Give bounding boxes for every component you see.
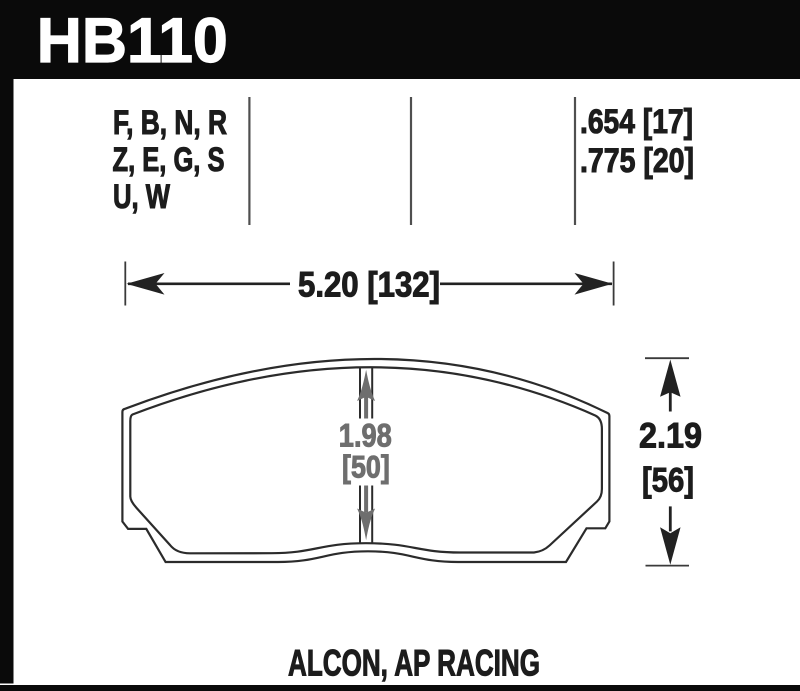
svg-text:[50]: [50] (342, 449, 390, 485)
svg-text:2.19: 2.19 (639, 417, 702, 456)
svg-text:Z, E, G, S: Z, E, G, S (113, 141, 225, 179)
svg-text:F, B, N, R: F, B, N, R (113, 104, 227, 142)
svg-text:.775 [20]: .775 [20] (580, 142, 694, 180)
svg-text:U, W: U, W (113, 178, 171, 216)
svg-text:HB110: HB110 (37, 6, 228, 76)
svg-text:ALCON, AP RACING: ALCON, AP RACING (288, 643, 540, 684)
svg-text:5.20 [132]: 5.20 [132] (298, 265, 440, 305)
svg-text:.654 [17]: .654 [17] (580, 103, 693, 141)
svg-text:[56]: [56] (642, 461, 694, 499)
